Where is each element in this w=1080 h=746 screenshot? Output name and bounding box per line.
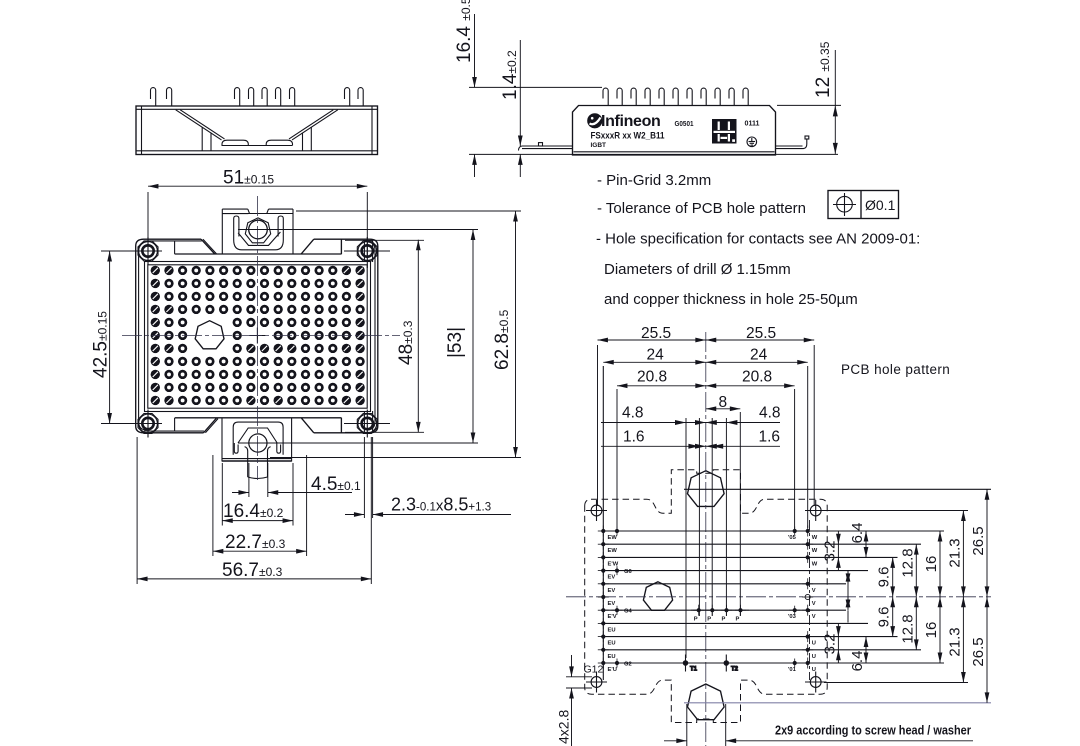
svg-text:V: V	[812, 601, 816, 607]
svg-text:1.6: 1.6	[759, 429, 781, 446]
svg-text:W: W	[812, 561, 818, 567]
svg-text:6.4: 6.4	[849, 651, 866, 672]
svg-text:E'V: E'V	[608, 614, 617, 620]
svg-text:EW: EW	[608, 535, 618, 541]
svg-text:FSxxxR xx W2_B11: FSxxxR xx W2_B11	[591, 131, 665, 141]
svg-text:W: W	[812, 548, 818, 554]
svg-text:EW: EW	[608, 548, 618, 554]
svg-text:U: U	[812, 641, 816, 647]
svg-text:EU: EU	[608, 654, 616, 660]
svg-text:26.5: 26.5	[970, 637, 987, 666]
svg-text:V: V	[812, 614, 816, 620]
svg-text:4.8: 4.8	[759, 404, 781, 421]
svg-text:P: P	[736, 617, 740, 623]
svg-text:P: P	[707, 617, 711, 623]
svg-text:P: P	[722, 617, 726, 623]
svg-text:25.5: 25.5	[746, 325, 776, 342]
svg-text:G12: G12	[584, 664, 604, 676]
svg-text:EV: EV	[608, 601, 616, 607]
svg-text:E'U: E'U	[608, 667, 617, 673]
svg-text:|53|: |53|	[445, 327, 466, 358]
svg-text:W: W	[812, 535, 818, 541]
svg-text:16: 16	[923, 556, 940, 573]
svg-text:V: V	[812, 588, 816, 594]
svg-text:- Pin-Grid 3.2mm: - Pin-Grid 3.2mm	[597, 172, 711, 189]
svg-text:G2: G2	[624, 662, 632, 668]
svg-text:P: P	[694, 617, 698, 623]
svg-text:T2: T2	[731, 667, 739, 673]
svg-text:6.4: 6.4	[849, 523, 866, 544]
svg-text:21.3: 21.3	[946, 538, 963, 567]
svg-text:12.8: 12.8	[899, 548, 916, 577]
svg-text:Ø0.1: Ø0.1	[865, 197, 896, 213]
svg-text:3.2: 3.2	[821, 634, 838, 655]
svg-text:24: 24	[750, 347, 768, 364]
svg-text:PCB hole pattern: PCB hole pattern	[841, 362, 950, 377]
svg-text:- Tolerance of PCB hole patter: - Tolerance of PCB hole pattern	[597, 200, 806, 217]
svg-text:24: 24	[647, 347, 665, 364]
svg-text:0111: 0111	[745, 119, 760, 128]
svg-text:EU: EU	[608, 627, 616, 633]
svg-text:1.6: 1.6	[623, 429, 645, 446]
svg-text:4.8: 4.8	[622, 404, 644, 421]
svg-text:21.3: 21.3	[946, 627, 963, 656]
svg-text:20.8: 20.8	[637, 369, 667, 386]
svg-text:- Hole specification for conta: - Hole specification for contacts see AN…	[596, 231, 920, 248]
svg-text:'05: '05	[788, 535, 797, 541]
svg-text:T1: T1	[690, 667, 698, 673]
svg-text:EU: EU	[608, 641, 616, 647]
svg-text:IGBT: IGBT	[591, 142, 607, 149]
svg-text:Infineon: Infineon	[601, 113, 662, 130]
svg-text:16: 16	[923, 622, 940, 639]
svg-text:25.5: 25.5	[641, 325, 671, 342]
svg-text:Diameters of drill Ø 1.15mm: Diameters of drill Ø 1.15mm	[604, 261, 791, 278]
svg-text:9.6: 9.6	[876, 607, 893, 628]
svg-text:G6: G6	[624, 569, 633, 575]
svg-text:20.8: 20.8	[742, 369, 772, 386]
svg-text:U: U	[812, 667, 816, 673]
svg-text:G0501: G0501	[675, 119, 694, 128]
svg-text:3.2: 3.2	[821, 541, 838, 562]
svg-text:4x2.8: 4x2.8	[556, 710, 572, 744]
svg-text:26.5: 26.5	[970, 526, 987, 555]
svg-text:12.8: 12.8	[899, 614, 916, 643]
svg-text:9.6: 9.6	[876, 567, 893, 588]
svg-text:EV: EV	[608, 575, 616, 581]
svg-text:EV: EV	[608, 588, 616, 594]
svg-text:2x9 according to screw head /: 2x9 according to screw head / washer	[775, 723, 971, 738]
svg-text:'01: '01	[788, 667, 797, 673]
svg-text:G4: G4	[624, 609, 633, 615]
svg-text:'03: '03	[788, 614, 797, 620]
svg-text:U: U	[812, 654, 816, 660]
svg-text:and copper thickness in hole 2: and copper thickness in hole 25-50µm	[604, 291, 858, 308]
